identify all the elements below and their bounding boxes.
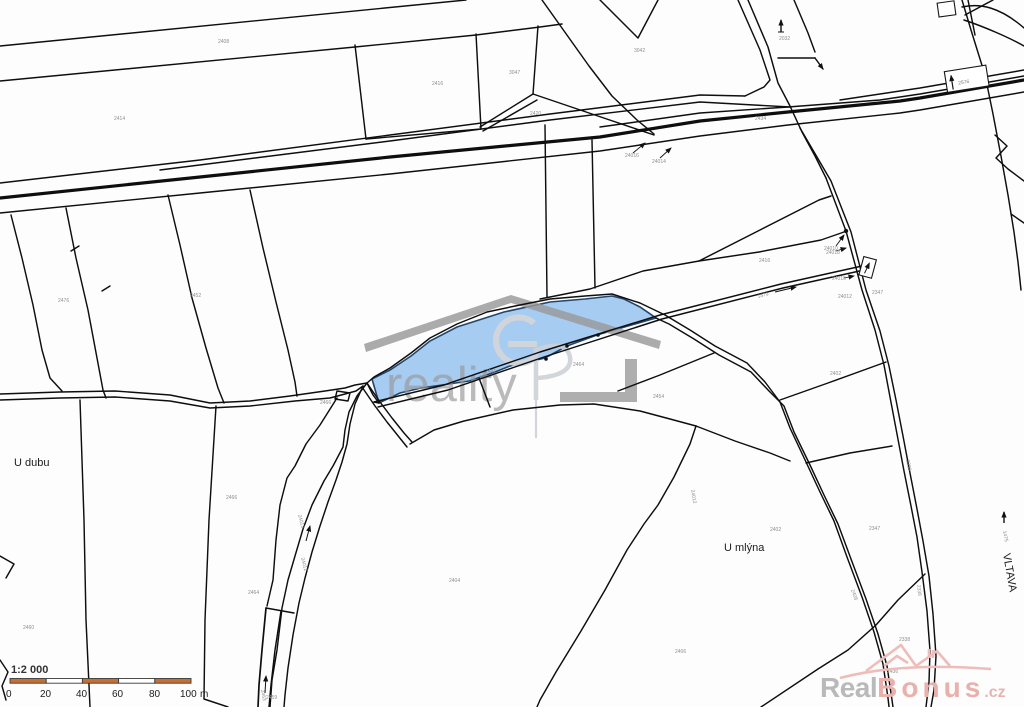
svg-text:24014: 24014 [652,159,666,165]
svg-text:2338: 2338 [899,637,910,643]
svg-text:2402: 2402 [770,527,781,533]
svg-text:40: 40 [76,689,88,700]
svg-text:m: m [200,689,208,700]
svg-text:2408: 2408 [218,39,229,45]
svg-text:80: 80 [149,689,161,700]
svg-text:2466: 2466 [226,495,237,501]
svg-text:2454: 2454 [653,394,664,400]
svg-text:24010: 24010 [824,246,838,252]
svg-text:24010: 24010 [832,276,846,282]
svg-text:2420: 2420 [530,111,541,117]
svg-text:60: 60 [112,689,124,700]
svg-text:2434: 2434 [755,116,766,122]
svg-text:2464: 2464 [248,590,259,596]
svg-text:2441: 2441 [485,369,496,375]
svg-text:0: 0 [6,689,12,700]
svg-text:2460: 2460 [23,625,34,631]
svg-text:U mlýna: U mlýna [724,542,765,554]
svg-text:24012: 24012 [838,294,852,300]
svg-text:RealBonus.cz: RealBonus.cz [820,672,1006,703]
svg-text:2406: 2406 [675,649,686,655]
svg-text:2476: 2476 [58,298,69,304]
svg-text:2347: 2347 [872,290,883,296]
svg-text:1:2 000: 1:2 000 [11,664,48,676]
svg-text:U dubu: U dubu [14,457,49,469]
svg-text:2402: 2402 [830,371,841,377]
svg-text:2347: 2347 [869,526,880,532]
svg-text:2032: 2032 [779,36,790,42]
svg-text:20: 20 [40,689,52,700]
svg-text:24016: 24016 [625,153,639,159]
svg-text:2466: 2466 [320,400,331,406]
svg-text:2464: 2464 [573,362,584,368]
svg-text:2452: 2452 [190,293,201,299]
svg-text:2404: 2404 [449,578,460,584]
svg-text:3042: 3042 [634,48,645,54]
svg-text:2414: 2414 [114,116,125,122]
svg-text:3047: 3047 [509,70,520,76]
svg-text:2416: 2416 [759,258,770,264]
svg-text:100: 100 [180,689,197,700]
svg-text:2416: 2416 [432,81,443,87]
